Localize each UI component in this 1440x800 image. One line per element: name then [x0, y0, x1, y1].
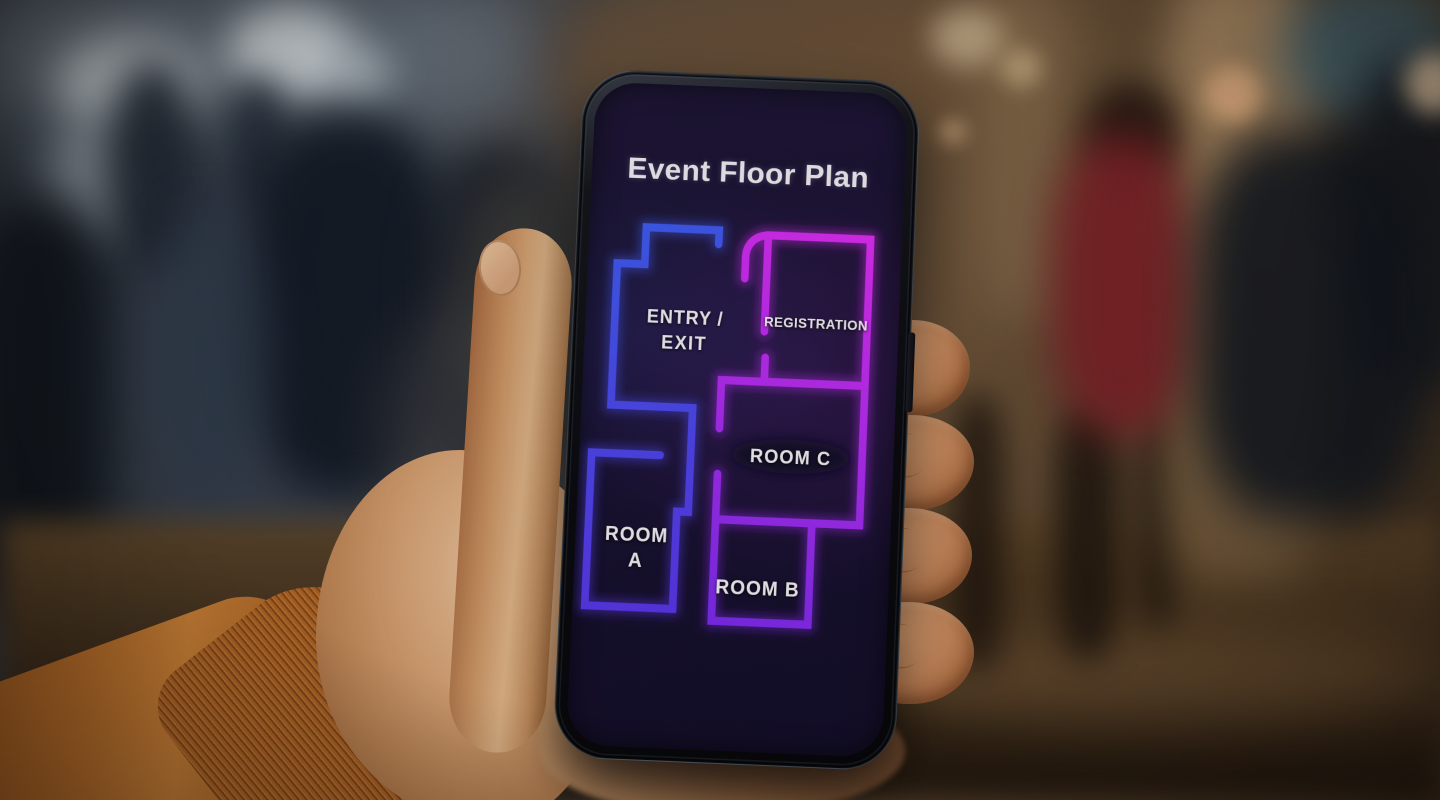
- room-label: ROOM B: [715, 576, 800, 602]
- room-entry-exit[interactable]: ENTRY / EXIT: [645, 305, 724, 355]
- room-c[interactable]: ROOM C: [750, 444, 832, 469]
- room-label: A: [628, 549, 644, 572]
- room-a[interactable]: ROOM A: [603, 522, 668, 573]
- bokeh-light: [1000, 48, 1042, 88]
- bokeh-light: [325, 45, 395, 105]
- room-label: EXIT: [661, 331, 708, 355]
- person-silhouette: [1195, 130, 1430, 520]
- bokeh-light: [1205, 66, 1261, 122]
- person-in-red: [1052, 135, 1192, 435]
- room-b[interactable]: ROOM B: [715, 576, 800, 602]
- smartphone: Event Floor Plan: [552, 68, 921, 771]
- event-venue-photo: Event Floor Plan: [0, 0, 1440, 800]
- blue-room-walls: [585, 225, 720, 610]
- purple-room-walls: [711, 234, 870, 627]
- bokeh-light: [938, 118, 968, 146]
- floor-plan-canvas: ENTRY / EXIT REGISTRATION ROOM C ROOM A …: [566, 82, 908, 758]
- phone-screen: Event Floor Plan: [566, 82, 908, 758]
- room-label: ROOM C: [750, 444, 832, 469]
- person-silhouette: [150, 210, 270, 500]
- person-legs-silhouette: [1055, 405, 1120, 660]
- room-label: REGISTRATION: [764, 314, 868, 334]
- room-registration[interactable]: REGISTRATION: [764, 314, 868, 334]
- room-label: ENTRY /: [646, 305, 724, 330]
- bokeh-light: [930, 8, 1005, 68]
- room-label: ROOM: [605, 522, 669, 547]
